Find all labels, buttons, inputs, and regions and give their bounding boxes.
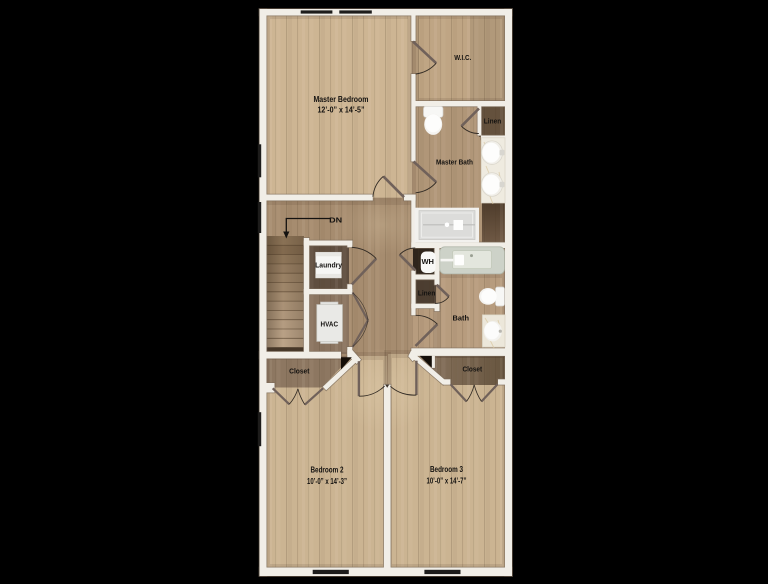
svg-text:Bath: Bath — [453, 314, 470, 323]
svg-text:10’-0” x 14’-7”: 10’-0” x 14’-7” — [427, 476, 467, 485]
svg-text:Master Bath: Master Bath — [436, 157, 473, 166]
svg-text:Bedroom 2: Bedroom 2 — [311, 465, 344, 475]
svg-text:12’-0” x 14’-5”: 12’-0” x 14’-5” — [318, 106, 365, 115]
svg-text:W.I.C.: W.I.C. — [454, 55, 471, 62]
svg-text:DN: DN — [329, 216, 342, 225]
svg-text:Linen: Linen — [418, 291, 436, 298]
svg-text:Closet: Closet — [289, 367, 310, 376]
svg-text:Laundry: Laundry — [315, 261, 343, 270]
svg-text:Closet: Closet — [463, 365, 483, 374]
svg-text:Linen: Linen — [484, 119, 502, 126]
svg-text:WH: WH — [421, 257, 434, 266]
svg-text:10’-0” x 14’-3”: 10’-0” x 14’-3” — [307, 477, 347, 486]
svg-text:HVAC: HVAC — [321, 320, 339, 329]
svg-text:Bedroom 3: Bedroom 3 — [430, 464, 463, 474]
svg-text:Master Bedroom: Master Bedroom — [314, 94, 369, 104]
